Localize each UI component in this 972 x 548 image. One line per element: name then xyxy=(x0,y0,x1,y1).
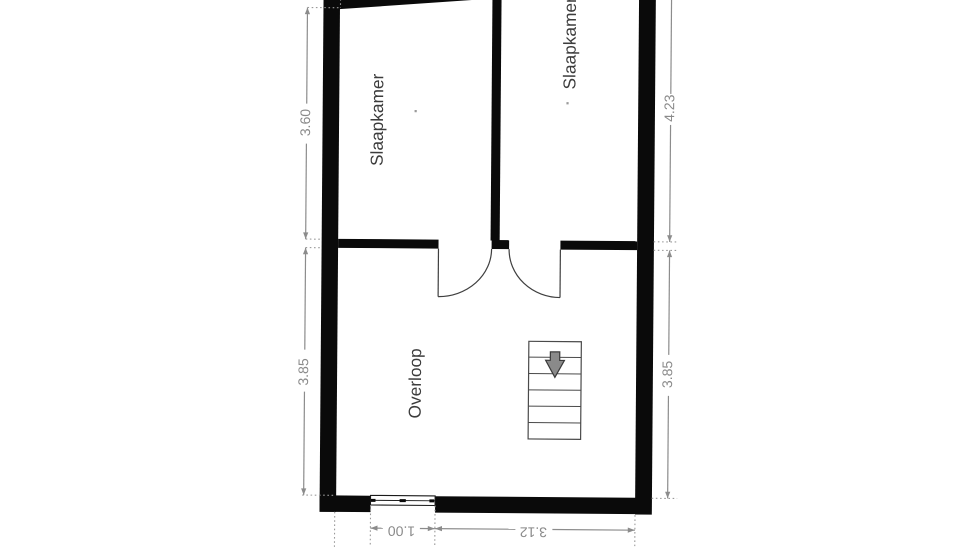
svg-text:3.12: 3.12 xyxy=(519,524,547,540)
svg-text:3.85: 3.85 xyxy=(295,358,311,386)
svg-text:Overloop: Overloop xyxy=(405,348,426,418)
svg-text:3.60: 3.60 xyxy=(297,109,313,137)
svg-text:Slaapkamer: Slaapkamer xyxy=(559,0,580,90)
svg-text:Slaapkamer: Slaapkamer xyxy=(367,73,388,166)
svg-text:1.00: 1.00 xyxy=(388,523,416,539)
svg-text:4.23: 4.23 xyxy=(661,94,677,122)
svg-text:3.85: 3.85 xyxy=(659,361,675,389)
